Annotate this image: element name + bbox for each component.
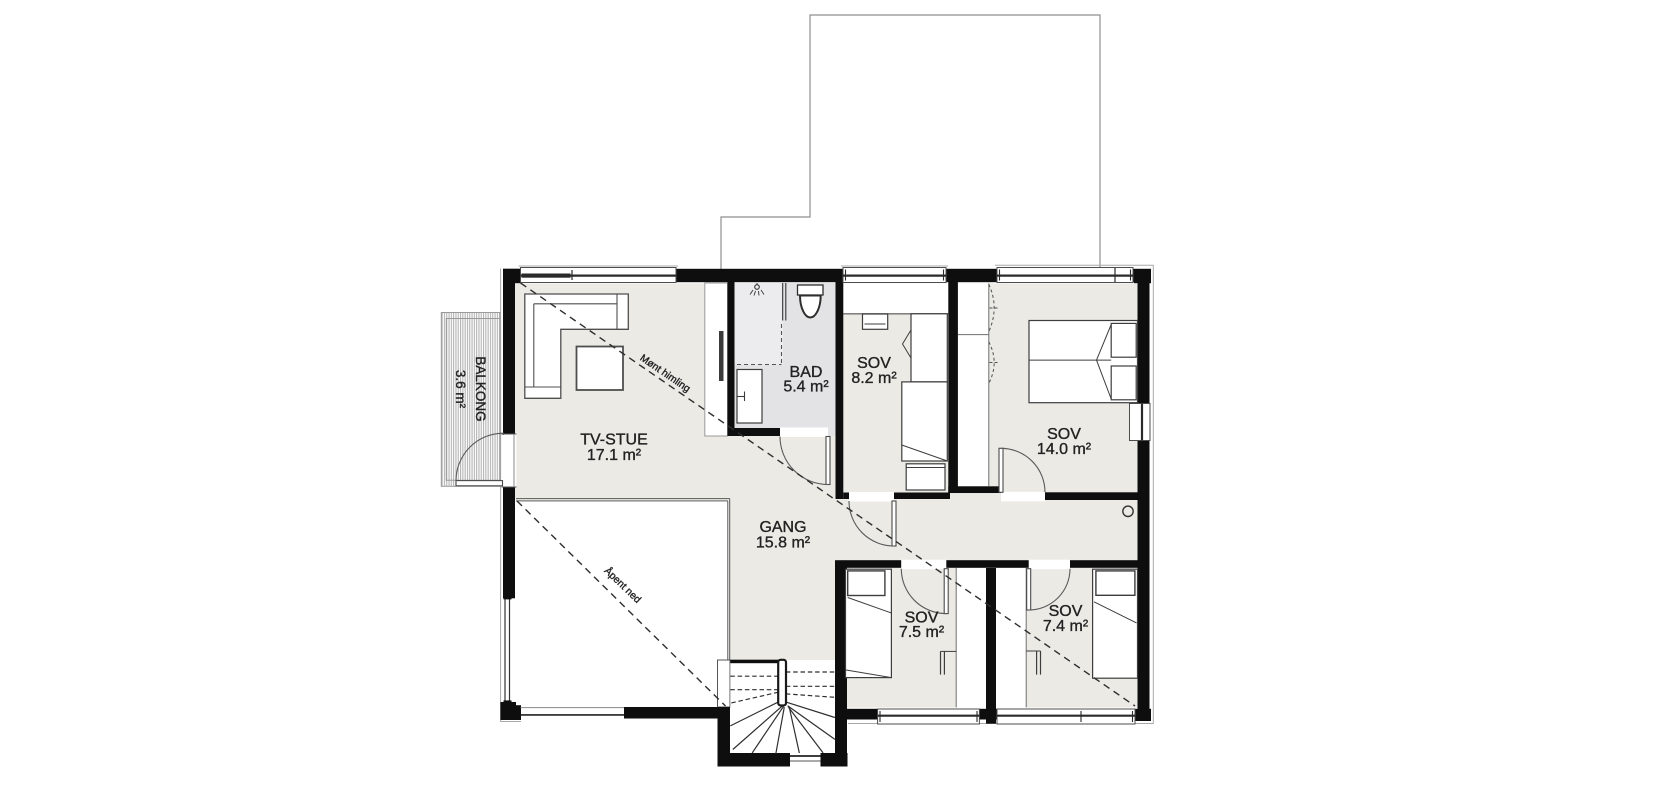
svg-text:3.6 m²: 3.6 m²	[453, 370, 468, 409]
svg-text:BALKONG: BALKONG	[473, 356, 488, 421]
svg-text:TV-STUE: TV-STUE	[580, 432, 648, 449]
svg-text:8.2 m²: 8.2 m²	[851, 370, 897, 387]
svg-text:7.5 m²: 7.5 m²	[899, 624, 945, 641]
svg-text:15.8 m²: 15.8 m²	[756, 535, 811, 552]
svg-text:7.4 m²: 7.4 m²	[1043, 618, 1089, 635]
svg-text:17.1 m²: 17.1 m²	[587, 447, 642, 464]
svg-text:GANG: GANG	[759, 519, 806, 536]
svg-text:5.4 m²: 5.4 m²	[783, 379, 829, 396]
svg-text:14.0 m²: 14.0 m²	[1037, 441, 1092, 458]
